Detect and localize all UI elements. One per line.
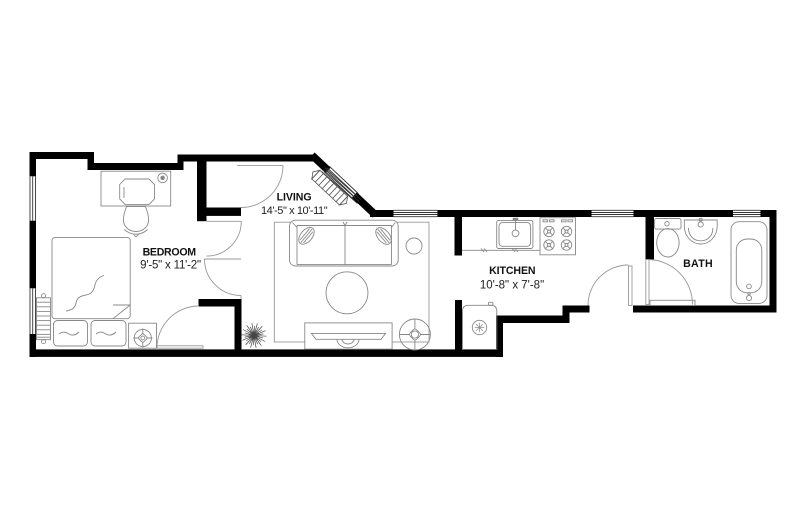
- svg-text:LIVING: LIVING: [277, 191, 312, 203]
- svg-text:14'-5" x 10'-11": 14'-5" x 10'-11": [261, 205, 328, 217]
- svg-text:BEDROOM: BEDROOM: [143, 246, 197, 258]
- svg-text:BATH: BATH: [683, 258, 713, 270]
- svg-text:10'-8" x 7'-8": 10'-8" x 7'-8": [480, 280, 544, 292]
- svg-text:9'-5" x 11'-2": 9'-5" x 11'-2": [140, 259, 201, 271]
- svg-text:KITCHEN: KITCHEN: [489, 265, 535, 277]
